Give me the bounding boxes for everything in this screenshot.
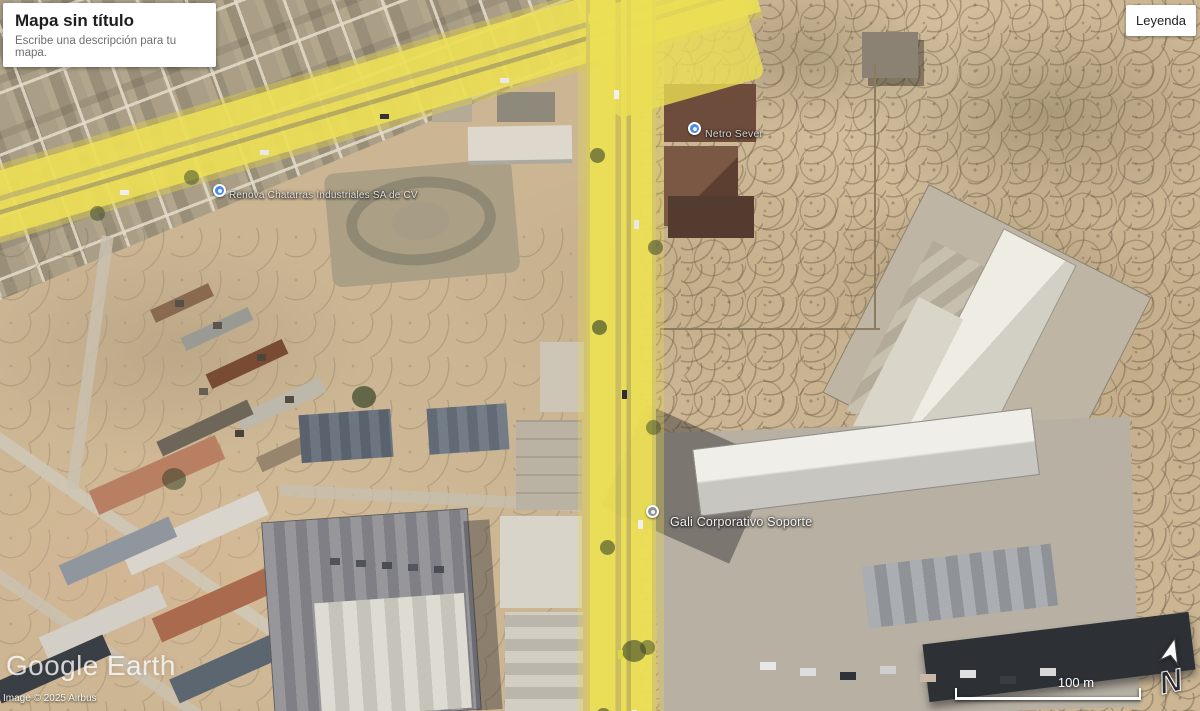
truck-row — [760, 662, 776, 670]
legend-button[interactable]: Leyenda — [1126, 5, 1196, 36]
cars-diagonal-road — [120, 190, 129, 195]
brick-building — [668, 196, 754, 238]
rooftop-units — [330, 558, 340, 565]
scale-bar-line — [955, 688, 1141, 700]
map-label-netro[interactable]: Netro Sever — [705, 128, 763, 140]
map-canvas[interactable]: Renova Chatarras Industriales SA de CV N… — [0, 0, 1200, 711]
roadside-building — [516, 420, 582, 510]
container-block — [426, 403, 509, 454]
scrap-clutter — [175, 300, 184, 307]
copyright-text: Image © 2025 Airbus — [3, 693, 97, 704]
poi-marker-renova[interactable] — [213, 184, 226, 197]
google-earth-logo: Google Earth — [6, 650, 176, 682]
tree — [590, 148, 605, 163]
poi-marker-gali[interactable] — [646, 505, 659, 518]
compass-north-arrow[interactable]: N — [1148, 636, 1194, 698]
fence-line — [874, 64, 876, 330]
roadside-building — [500, 516, 582, 608]
small-building — [862, 32, 918, 78]
north-arrow-icon — [1160, 636, 1184, 665]
map-label-gali[interactable]: Gali Corporativo Soporte — [670, 515, 812, 529]
map-title: Mapa sin título — [15, 11, 204, 31]
small-building — [497, 92, 555, 122]
scale-bar: 100 m — [955, 679, 1141, 700]
small-building — [468, 125, 573, 165]
compass-n-label: N — [1156, 662, 1187, 698]
google-earth-map-view: Renova Chatarras Industriales SA de CV N… — [0, 0, 1200, 711]
map-subtitle: Escribe una descripción para tu mapa. — [15, 35, 204, 59]
container-block — [298, 409, 393, 463]
roadside-building — [505, 612, 583, 711]
fence-line — [660, 328, 880, 330]
factory-annex-roof — [314, 593, 472, 711]
tree-large — [352, 386, 376, 408]
map-title-card[interactable]: Mapa sin título Escribe una descripción … — [3, 3, 216, 67]
poi-marker-netro[interactable] — [688, 122, 701, 135]
cars-vertical-road — [614, 90, 619, 99]
map-label-renova[interactable]: Renova Chatarras Industriales SA de CV — [229, 190, 418, 201]
